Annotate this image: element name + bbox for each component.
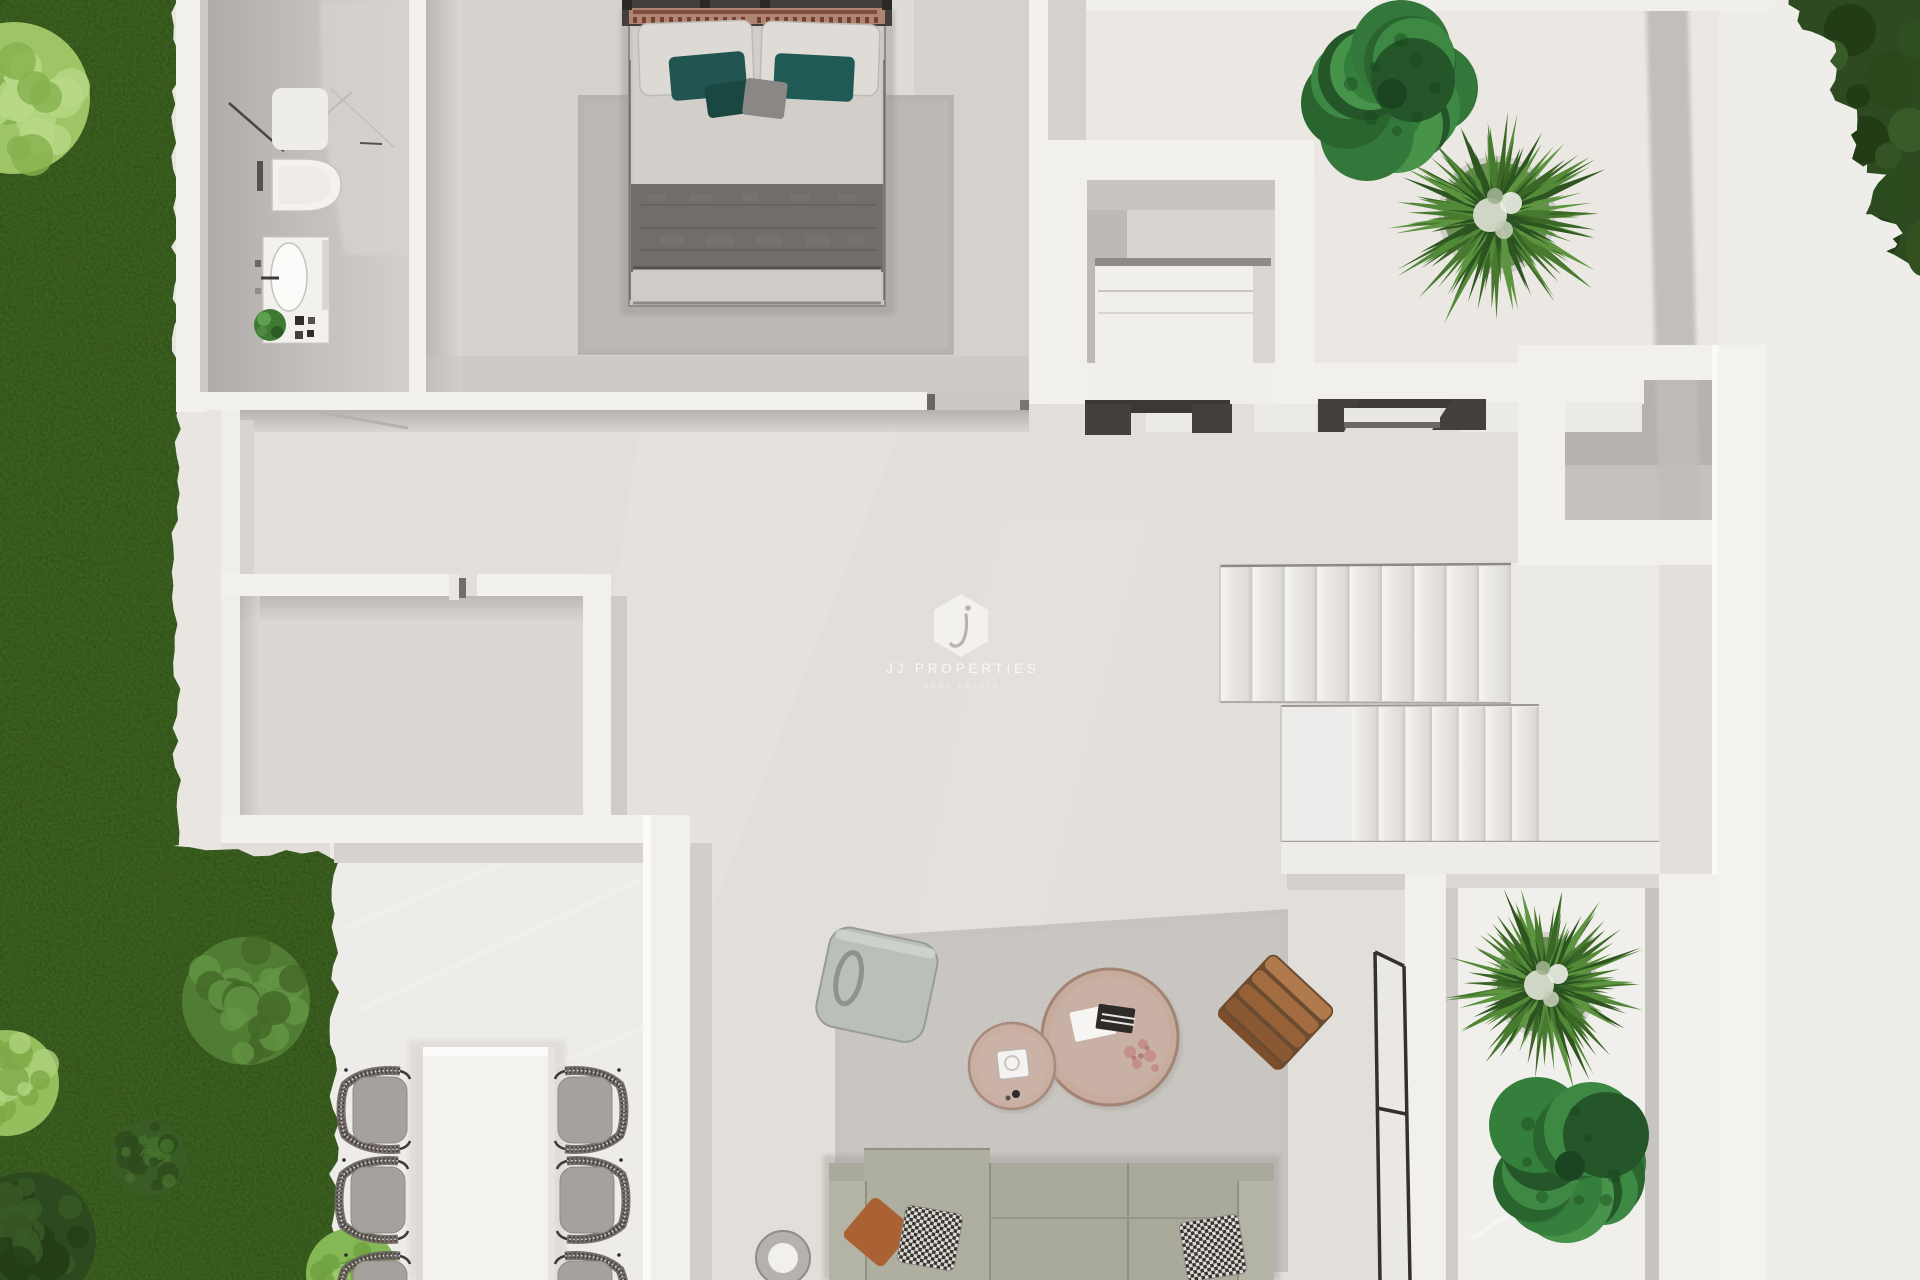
svg-text:REAL ESTATE: REAL ESTATE bbox=[924, 683, 1001, 690]
svg-text:JJ PROPERTIES: JJ PROPERTIES bbox=[886, 661, 1039, 676]
